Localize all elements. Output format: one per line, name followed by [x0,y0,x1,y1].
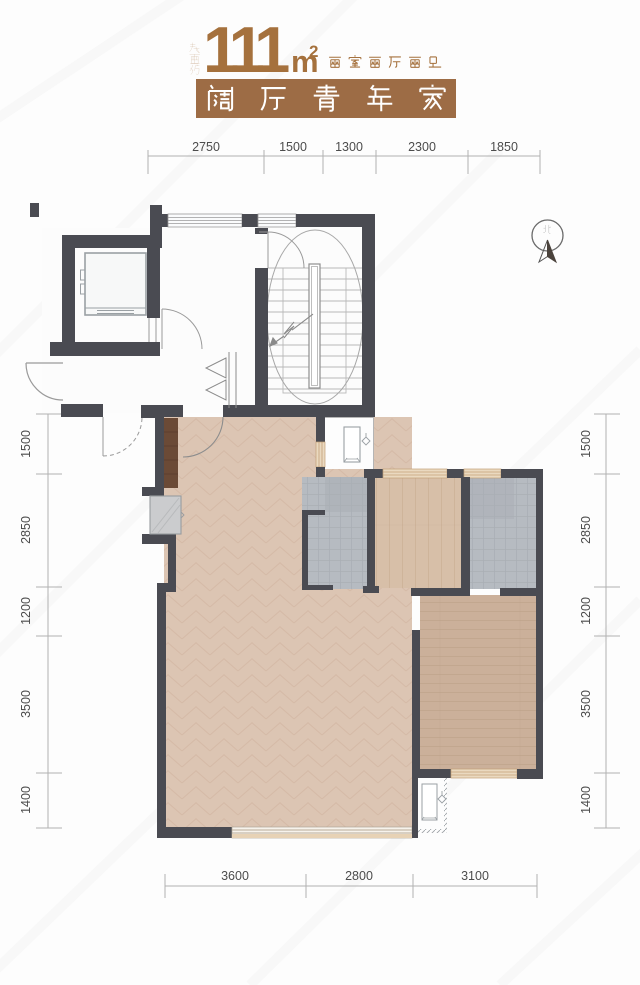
svg-text:1200: 1200 [579,597,593,625]
svg-text:2850: 2850 [19,516,33,544]
svg-text:2850: 2850 [579,516,593,544]
svg-text:3600: 3600 [221,869,249,883]
svg-text:1200: 1200 [19,597,33,625]
svg-text:2300: 2300 [408,140,436,154]
svg-text:1400: 1400 [579,786,593,814]
svg-text:111: 111 [203,13,289,86]
svg-text:1400: 1400 [19,786,33,814]
svg-text:1850: 1850 [490,140,518,154]
svg-text:3500: 3500 [19,690,33,718]
svg-text:2: 2 [309,42,318,61]
svg-text:1300: 1300 [335,140,363,154]
svg-text:2750: 2750 [192,140,220,154]
svg-text:1500: 1500 [279,140,307,154]
svg-text:3100: 3100 [461,869,489,883]
svg-text:2800: 2800 [345,869,373,883]
svg-text:1500: 1500 [19,430,33,458]
svg-text:1500: 1500 [579,430,593,458]
svg-text:3500: 3500 [579,690,593,718]
